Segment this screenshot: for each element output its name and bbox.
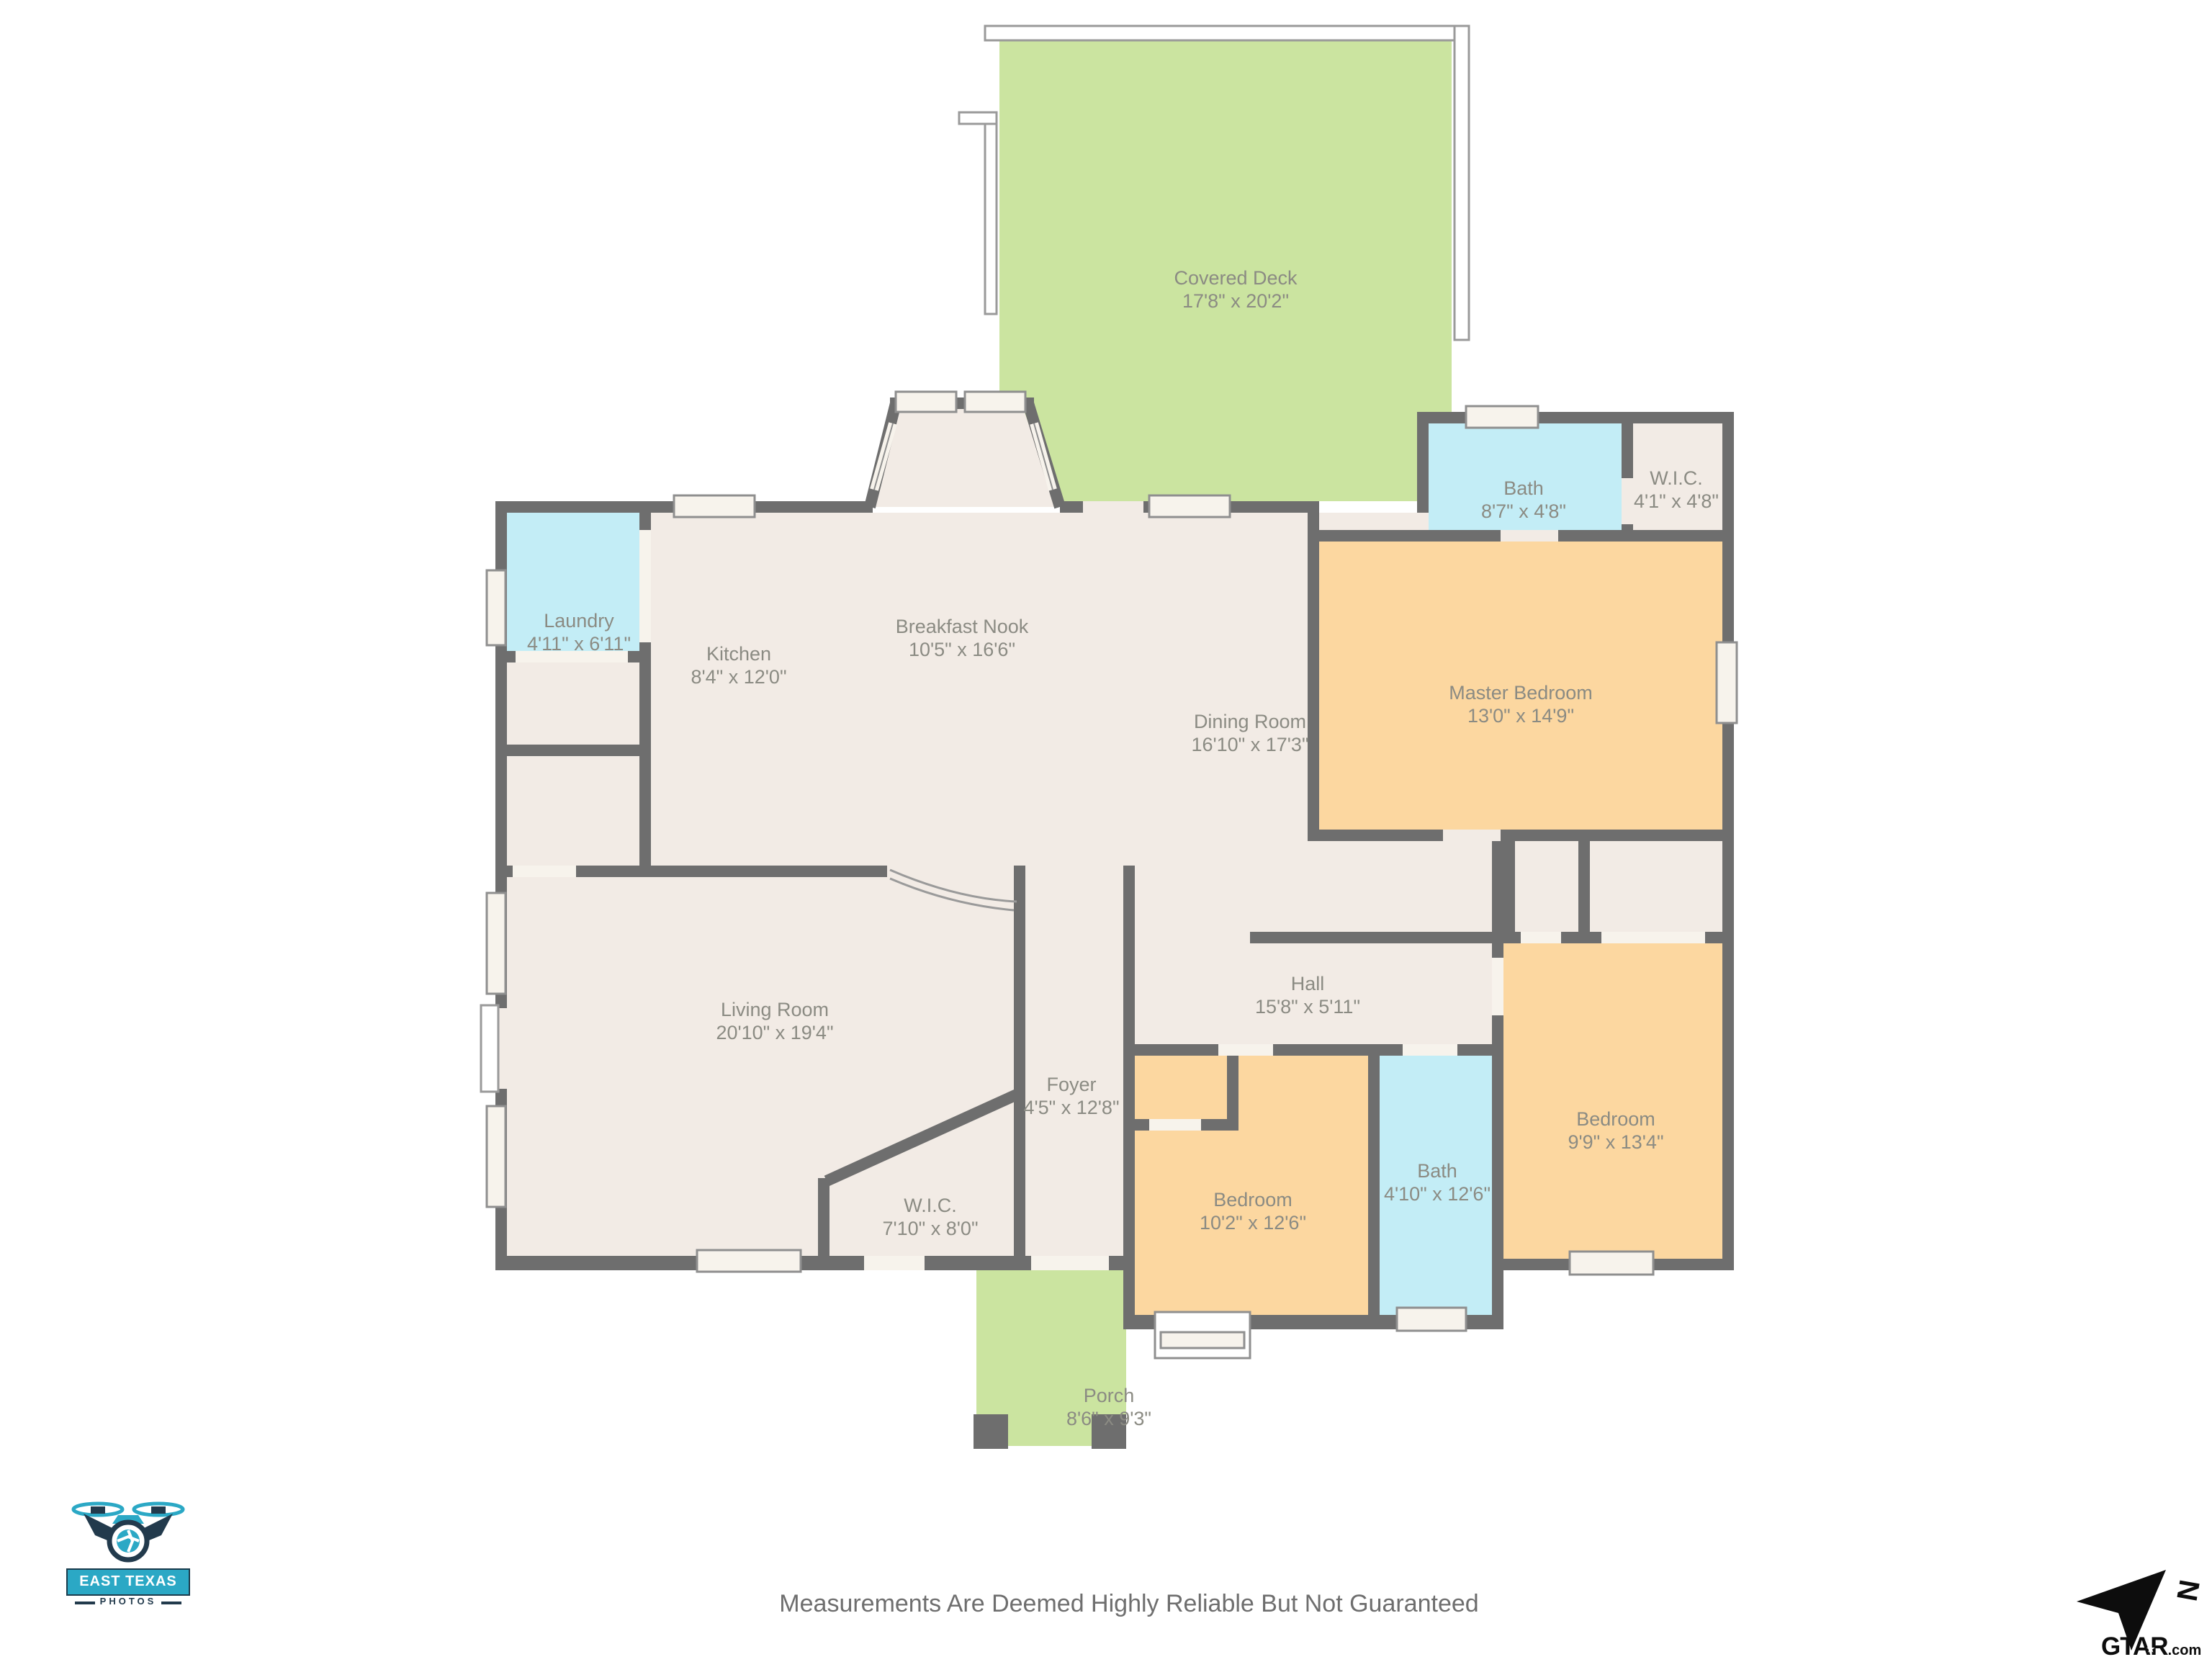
gtar-site: GTAR [2101,1632,2168,1661]
room-label-wic-2: W.I.C. 7'10" x 8'0" [882,1195,978,1242]
bath-wic-door [1622,478,1633,524]
gtar-branding: GTAR.com ★ [2101,1632,2201,1662]
master-bath-door [1501,530,1558,542]
measurement-disclaimer: Measurements Are Deemed Highly Reliable … [779,1590,1478,1619]
room-name: Foyer [1046,1074,1096,1095]
bedroom1-bay-window [1161,1332,1244,1348]
room-dims: 4'10" x 12'6" [1384,1184,1491,1208]
master-hall-door [1443,830,1501,841]
room-name: Bath [1503,477,1544,499]
room-label-dining-room: Dining Room 16'10" x 17'3" [1191,711,1308,758]
room-name: Breakfast Nook [896,616,1029,637]
kitchen-window [674,495,755,517]
logo-line-left [76,1601,96,1604]
closet-door-2 [1601,932,1705,943]
bedroom2-floor [1503,943,1722,1259]
bedroom2-window [1570,1252,1653,1275]
room-name: W.I.C. [1650,467,1703,489]
bath2-door [1403,1044,1457,1056]
room-dims: 4'11" x 6'11" [527,634,631,657]
room-name: Bath [1417,1160,1457,1182]
room-label-bath-1: Bath 8'7" x 4'8" [1481,477,1566,525]
room-dims: 8'7" x 4'8" [1481,501,1566,525]
room-dims: 15'8" x 5'11" [1255,997,1360,1020]
room-label-kitchen: Kitchen 8'4" x 12'0" [691,643,786,691]
bay-window-1 [896,392,956,412]
dining-window [1149,495,1230,517]
logo-line-right [161,1601,181,1604]
bay-window-2 [965,392,1025,412]
living-window-2 [487,1106,505,1207]
room-name: Master Bedroom [1449,682,1593,704]
room-dims: 13'0" x 14'9" [1449,706,1593,729]
front-door [1031,1256,1109,1270]
bath2-window [1397,1308,1466,1331]
room-label-hall: Hall 15'8" x 5'11" [1255,973,1360,1020]
bath1-window [1466,406,1538,428]
room-label-covered-deck: Covered Deck 17'8" x 20'2" [1174,267,1297,315]
room-label-foyer: Foyer 4'5" x 12'8" [1023,1074,1119,1121]
room-name: W.I.C. [904,1195,957,1216]
room-label-wic-1: W.I.C. 4'1" x 4'8" [1634,467,1719,515]
room-name: Bedroom [1213,1189,1292,1210]
logo-text-east-texas: EAST TEXAS [79,1574,177,1590]
drone-icon [66,1498,190,1564]
compass-north-letter: N [2170,1577,2203,1603]
room-label-master-bedroom: Master Bedroom 13'0" x 14'9" [1449,682,1593,729]
room-name: Covered Deck [1174,267,1297,289]
room-dims: 4'5" x 12'8" [1023,1097,1119,1121]
living-window-3 [697,1250,801,1272]
laundry-side-door [639,530,651,642]
deck-railing-right [1455,26,1469,340]
laundry-window [487,570,505,645]
deck-railing-stub-v [985,124,997,314]
bedroom2-door [1492,958,1503,1015]
bedroom1-door [1218,1044,1273,1056]
living-window-1 [487,893,505,994]
porch-post-left [974,1414,1008,1449]
room-dims: 20'10" x 19'4" [716,1023,833,1046]
east-texas-photos-logo: EAST TEXAS PHOTOS [66,1498,190,1607]
wic2-door [864,1256,925,1270]
deck-railing-stub-h [959,112,997,124]
room-dims: 10'2" x 12'6" [1200,1213,1306,1236]
room-label-bedroom-1: Bedroom 10'2" x 12'6" [1200,1189,1306,1236]
room-name: Laundry [544,610,614,632]
room-label-breakfast-nook: Breakfast Nook 10'5" x 16'6" [896,616,1029,663]
room-name: Hall [1291,973,1325,994]
room-label-bath-2: Bath 4'10" x 12'6" [1384,1160,1491,1208]
room-name: Bedroom [1576,1108,1655,1130]
floor-plan-page: Covered Deck 17'8" x 20'2" Bath 8'7" x 4… [0,0,2212,1659]
kitchen-door [513,866,576,877]
room-dims: 7'10" x 8'0" [882,1218,978,1242]
closet-door-1 [1521,932,1561,943]
room-name: Living Room [721,999,829,1020]
room-label-bedroom-2: Bedroom 9'9" x 13'4" [1568,1108,1663,1156]
room-dims: 4'1" x 4'8" [1634,491,1719,515]
gtar-star-icon: ★ [2146,1643,2154,1654]
room-label-living-room: Living Room 20'10" x 19'4" [716,999,833,1046]
logo-banner: EAST TEXAS [66,1568,190,1596]
closet1-door [1149,1119,1201,1131]
room-dims: 8'4" x 12'0" [691,667,786,691]
room-label-porch: Porch 8'6" x 9'3" [1066,1385,1151,1432]
room-label-laundry: Laundry 4'11" x 6'11" [527,610,631,657]
logo-text-photos: PHOTOS [100,1597,157,1607]
room-name: Kitchen [706,643,771,665]
deck-railing-top [985,26,1469,40]
room-dims: 10'5" x 16'6" [896,639,1029,663]
deck-door [1083,501,1143,513]
logo-photos-row: PHOTOS [66,1597,190,1607]
room-name: Dining Room [1194,711,1306,732]
room-dims: 8'6" x 9'3" [1066,1409,1151,1432]
room-dims: 9'9" x 13'4" [1568,1132,1663,1156]
room-dims: 17'8" x 20'2" [1174,291,1297,315]
archway-opening [887,866,1014,877]
bedroom1-floor [1135,1056,1368,1315]
room-dims: 16'10" x 17'3" [1191,735,1308,758]
master-window [1717,642,1737,723]
gtar-tld: .com [2168,1643,2202,1659]
room-name: Porch [1084,1385,1135,1406]
